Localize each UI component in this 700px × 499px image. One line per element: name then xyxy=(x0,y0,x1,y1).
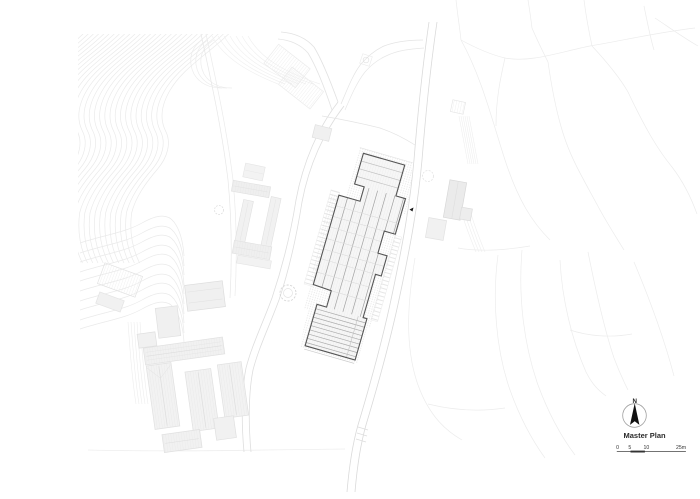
svg-text:N: N xyxy=(632,398,637,405)
svg-text:25m: 25m xyxy=(676,445,686,451)
svg-text:Master Plan: Master Plan xyxy=(624,431,667,440)
svg-text:10: 10 xyxy=(644,445,650,451)
svg-text:0: 0 xyxy=(616,445,619,451)
svg-text:5: 5 xyxy=(628,445,631,451)
